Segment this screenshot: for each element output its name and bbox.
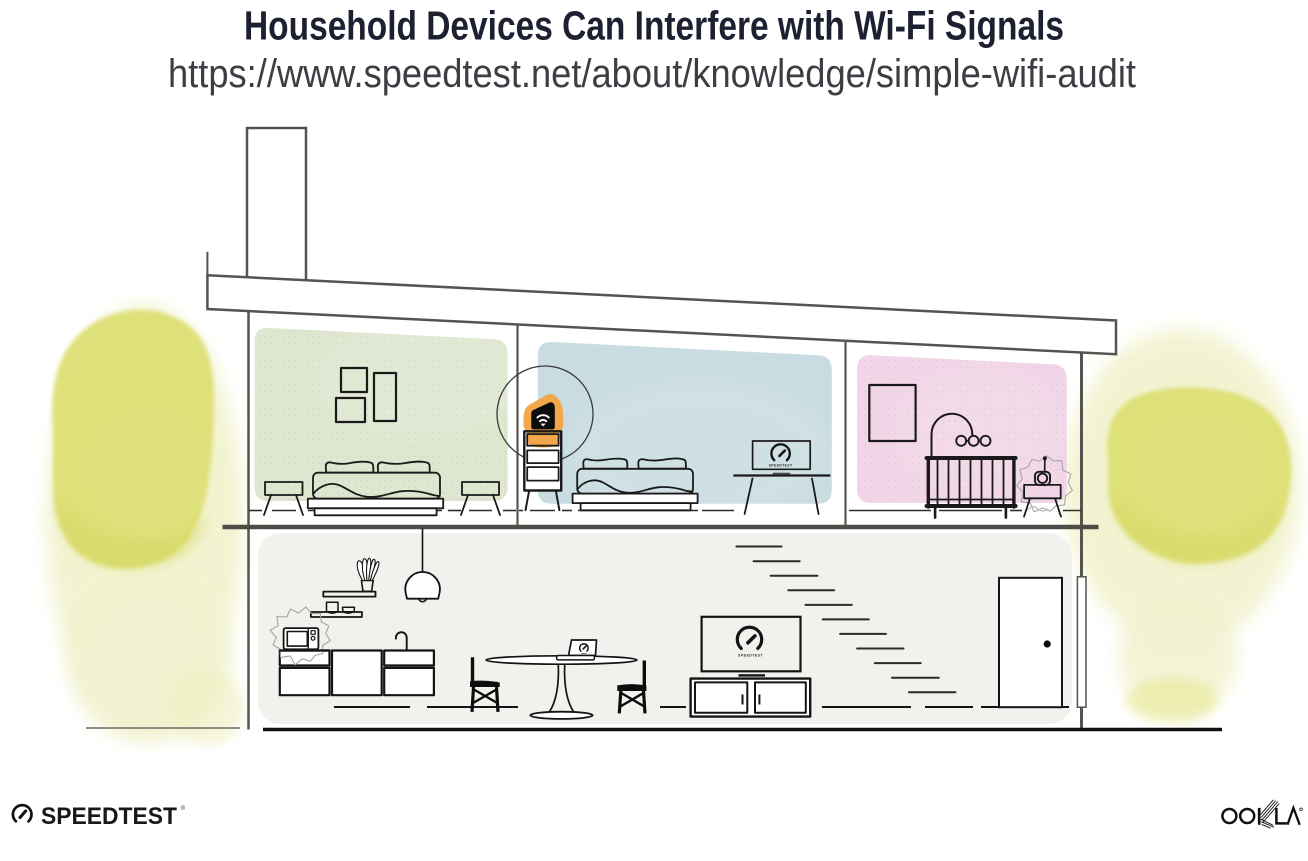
svg-text:SPEEDTEST: SPEEDTEST	[769, 463, 793, 467]
svg-text:https://www.speedtest.net/abou: https://www.speedtest.net/about/knowledg…	[168, 52, 1136, 96]
svg-text:®: ®	[181, 805, 186, 812]
svg-text:SPEEDTEST: SPEEDTEST	[738, 653, 763, 657]
svg-text:SPEEDTEST: SPEEDTEST	[41, 803, 177, 830]
svg-text:Household Devices Can Interfer: Household Devices Can Interfere with Wi-…	[244, 3, 1064, 49]
